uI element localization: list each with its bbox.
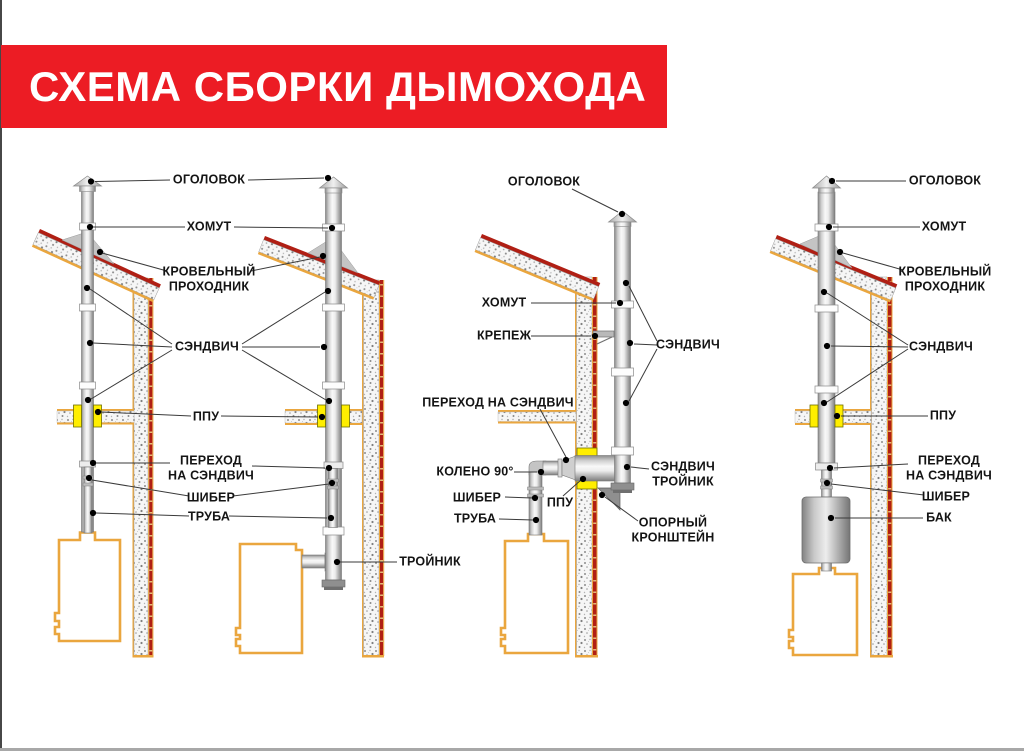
diagram-canvas: СХЕМА СБОРКИ ДЫМОХОДА ОГОЛОВОК ХОМУТ КРО… <box>0 0 1024 751</box>
label-perekhod-3: ПЕРЕХОД НА СЭНДВИЧ <box>422 396 574 411</box>
label-khomut-12: ХОМУТ <box>187 220 232 235</box>
d4-wall <box>870 277 893 658</box>
d3-boiler <box>501 534 568 653</box>
label-bak-4: БАК <box>926 511 952 526</box>
d4-chimney-cap-icon <box>813 176 841 193</box>
d3-ceiling <box>498 410 576 424</box>
label-perekhod-4: ПЕРЕХОД НА СЭНДВИЧ <box>906 453 992 483</box>
d2-chimney-cap-icon <box>320 177 348 193</box>
label-krepezh-3: КРЕПЕЖ <box>477 329 531 344</box>
d2-wall <box>362 280 384 658</box>
d1-roof <box>32 229 161 302</box>
diagram-1-through-roof <box>32 176 191 658</box>
label-shiber-3: ШИБЕР <box>453 491 501 506</box>
label-ppu-4: ППУ <box>930 409 956 424</box>
label-ogolovok-4: ОГОЛОВОК <box>909 174 981 189</box>
d1-wall <box>133 278 154 658</box>
d3-roof <box>475 234 601 301</box>
label-sandwich-troynik-3: СЭНДВИЧ ТРОЙНИК <box>651 459 715 489</box>
d4-boiler <box>789 568 857 655</box>
label-sandwich-12: СЭНДВИЧ <box>175 340 239 355</box>
label-koleno90-3: КОЛЕНО 90° <box>436 465 513 480</box>
label-sandwich-4: СЭНДВИЧ <box>909 340 973 355</box>
d2-boiler <box>236 544 302 653</box>
d2-boiler-stub <box>302 555 325 568</box>
diagram-2-through-roof-tee <box>221 175 397 658</box>
d2-roof <box>258 236 381 300</box>
d4-pipe <box>818 192 835 463</box>
d4-transition <box>816 463 838 470</box>
label-ppu-12: ППУ <box>193 410 219 425</box>
diagram-4-with-tank <box>770 176 928 658</box>
label-ppu-3: ППУ <box>547 496 573 511</box>
page-title: СХЕМА СБОРКИ ДЫМОХОДА <box>29 66 646 108</box>
label-truba-3: ТРУБА <box>454 512 496 527</box>
label-ogolovok-12: ОГОЛОВОК <box>173 173 245 188</box>
label-krovelny-prohodnik-12: КРОВЕЛЬНЫЙ ПРОХОДНИК <box>163 264 256 294</box>
d3-pipe <box>615 225 631 483</box>
title-banner: СХЕМА СБОРКИ ДЫМОХОДА <box>1 45 667 128</box>
d1-boiler <box>55 533 120 642</box>
label-khomut-4: ХОМУТ <box>922 220 967 235</box>
label-troynik-2: ТРОЙНИК <box>399 555 461 570</box>
d2-tee-bottom-cap <box>322 580 345 590</box>
label-sandwich-3: СЭНДВИЧ <box>656 338 720 353</box>
label-ogolovok-3: ОГОЛОВОК <box>508 175 580 190</box>
diagram-3-outdoor-wall-mounted <box>475 189 657 658</box>
d2-tee-body <box>326 534 342 580</box>
label-oporny-kronshteyn-3: ОПОРНЫЙ КРОНШТЕЙН <box>632 515 715 545</box>
label-khomut-3: ХОМУТ <box>482 296 527 311</box>
label-shiber-12: ШИБЕР <box>187 491 235 506</box>
d3-tee-bottom-cap <box>611 483 634 493</box>
label-shiber-4: ШИБЕР <box>922 490 970 505</box>
d1-chimney-cap-icon <box>74 176 102 192</box>
d4-water-tank <box>802 497 850 563</box>
label-truba-12: ТРУБА <box>188 510 230 525</box>
d4-single-pipe-lower <box>822 563 832 571</box>
label-perekhod-12: ПЕРЕХОД НА СЭНДВИЧ <box>168 453 254 483</box>
label-krovelny-prohodnik-4: КРОВЕЛЬНЫЙ ПРОХОДНИК <box>899 264 992 294</box>
